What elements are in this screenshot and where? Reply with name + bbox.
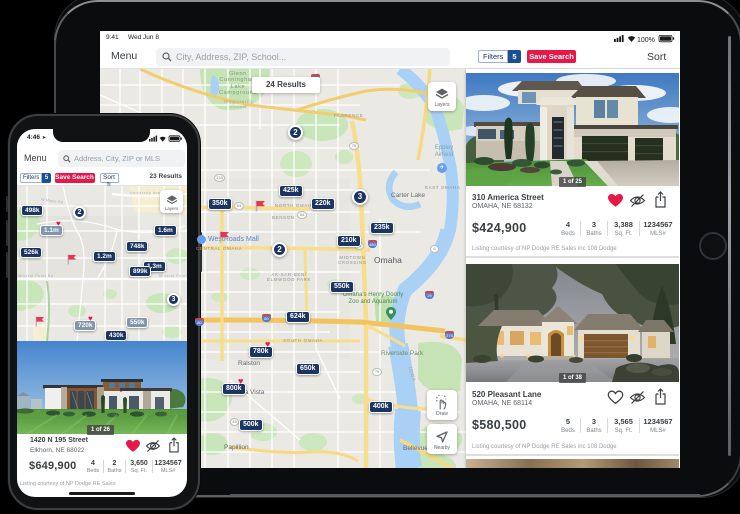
svg-text:100%: 100% (637, 37, 655, 44)
